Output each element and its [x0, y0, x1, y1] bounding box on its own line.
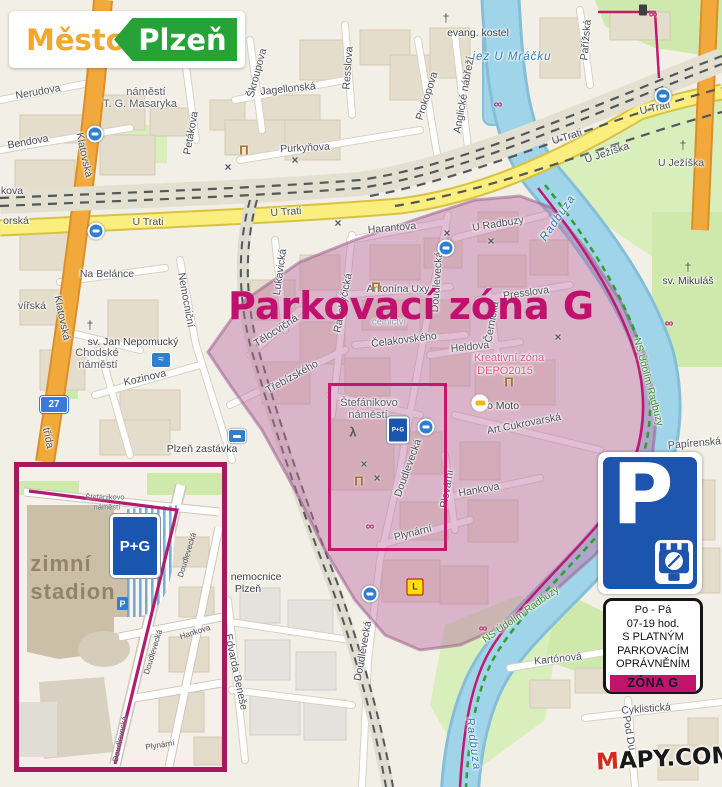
inset-label: Doudlevecká — [142, 629, 164, 676]
parking-sign-line: OPRÁVNĚNÍM — [606, 658, 700, 672]
parking-sign-lines: Po - Pá07-19 hod.S PLATNÝMPARKOVACÍMOPRÁ… — [606, 604, 700, 672]
inset-pg-label: P+G — [120, 538, 150, 555]
zone-title: Parkovací zóna G — [228, 284, 594, 328]
mapy-logo-m: M — [595, 748, 619, 775]
logo-city-name: Plzeň — [138, 23, 226, 57]
zone-g-badge: ZÓNA G — [610, 675, 696, 692]
parking-sign-line: Po - Pá — [606, 604, 700, 618]
logo-arrow: Plzeň — [114, 18, 237, 61]
inset-pg-sign: P+G — [110, 514, 160, 578]
map-canvas: NerudovanáměstíT. G. MasarykaBendovaPetá… — [0, 0, 722, 787]
inset-label: Doudlevecká — [176, 532, 198, 579]
inset-label: Plynární — [145, 738, 175, 751]
mapy-logo-rest: APY.COM — [618, 742, 722, 774]
parking-meter-icon — [655, 540, 693, 584]
parking-sign-blue-panel: P — [603, 457, 697, 589]
inset-source-rectangle — [328, 383, 447, 551]
city-logo: Město Plzeň — [9, 11, 245, 68]
inset-labels: ŠtefánikovonáměstízimnístadionDoudleveck… — [19, 467, 222, 767]
route-27-badge: 27 — [40, 396, 68, 413]
inset-label: stadion — [30, 579, 115, 605]
inset-label: zimní — [30, 551, 91, 577]
parking-sign-line: 07-19 hod. — [606, 618, 700, 632]
parking-sign-line: S PLATNÝM — [606, 631, 700, 645]
inset-label: náměstí — [94, 503, 121, 512]
inset-map: P ŠtefánikovonáměstízimnístadionDoudleve… — [14, 462, 227, 772]
inset-label: Hankova — [179, 623, 212, 641]
logo-city-word: Město — [26, 23, 126, 57]
parking-sign-text-panel: Po - Pá07-19 hod.S PLATNÝMPARKOVACÍMOPRÁ… — [603, 598, 703, 694]
parking-p-symbol: P — [612, 445, 674, 543]
inset-label: Doudlevecká — [111, 715, 129, 762]
parking-sign: P — [598, 452, 702, 594]
inset-label: Štefánikovo — [85, 493, 124, 502]
parking-sign-line: PARKOVACÍM — [606, 645, 700, 659]
